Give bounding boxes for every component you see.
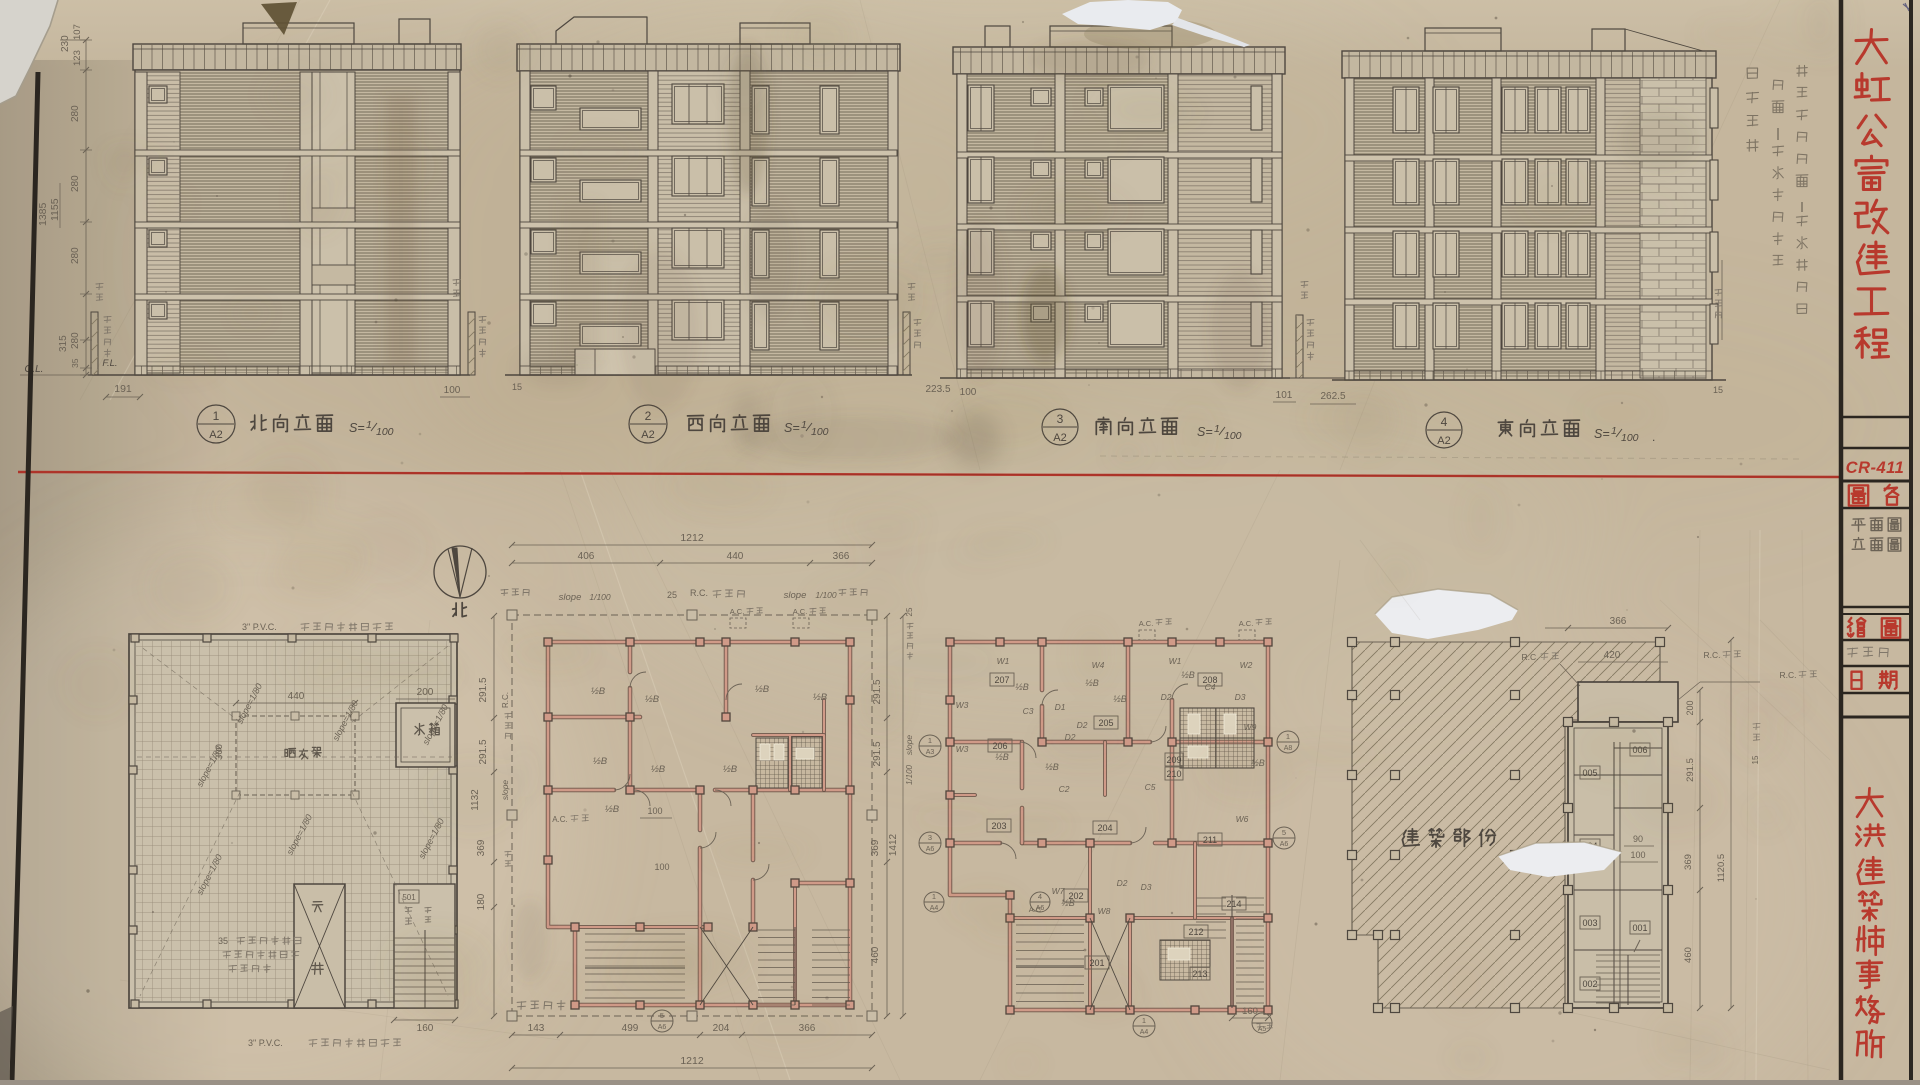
svg-text:R.C.: R.C. xyxy=(1780,670,1797,680)
svg-text:½B: ½B xyxy=(755,684,770,695)
svg-text:A6: A6 xyxy=(1036,905,1045,912)
svg-text:200: 200 xyxy=(417,687,434,698)
svg-text:3" P.V.C.: 3" P.V.C. xyxy=(248,1038,283,1048)
svg-text:280: 280 xyxy=(70,105,81,122)
svg-text:369: 369 xyxy=(1683,854,1694,870)
svg-text:206: 206 xyxy=(992,741,1007,751)
svg-text:100: 100 xyxy=(444,385,461,396)
svg-text:A6: A6 xyxy=(1280,841,1289,848)
svg-text:G.L.: G.L. xyxy=(25,364,44,375)
svg-text:143: 143 xyxy=(528,1023,545,1034)
svg-text:½B: ½B xyxy=(591,686,606,697)
svg-text:280: 280 xyxy=(70,175,81,192)
svg-text:1412: 1412 xyxy=(888,833,899,856)
svg-text:W6: W6 xyxy=(1236,814,1249,824)
svg-text:35: 35 xyxy=(70,358,80,368)
svg-text:W1: W1 xyxy=(1169,656,1182,666)
svg-text:A.C.: A.C. xyxy=(1239,619,1254,628)
svg-text:4: 4 xyxy=(1441,415,1448,429)
svg-text:209: 209 xyxy=(1166,755,1181,765)
svg-text:½B: ½B xyxy=(645,694,660,705)
svg-text:CR-411: CR-411 xyxy=(1846,459,1905,477)
svg-text:366: 366 xyxy=(833,551,850,562)
svg-text:A6: A6 xyxy=(926,846,935,853)
svg-text:1: 1 xyxy=(928,736,932,745)
svg-text:slope: slope xyxy=(904,735,914,756)
svg-text:D1: D1 xyxy=(1055,702,1066,712)
svg-text:315: 315 xyxy=(58,335,69,352)
svg-text:½B: ½B xyxy=(1015,682,1029,692)
svg-text:501: 501 xyxy=(402,893,416,902)
svg-text:1/100: 1/100 xyxy=(589,592,611,602)
svg-text:W1: W1 xyxy=(997,656,1010,666)
svg-text:W8: W8 xyxy=(1098,906,1111,916)
svg-text:180: 180 xyxy=(476,893,487,910)
svg-text:369: 369 xyxy=(476,839,487,856)
svg-text:1: 1 xyxy=(932,892,936,901)
svg-text:291.5: 291.5 xyxy=(872,741,883,766)
svg-text:W9: W9 xyxy=(1244,722,1257,732)
svg-text:100: 100 xyxy=(1630,850,1645,860)
svg-text:W7: W7 xyxy=(1052,886,1065,896)
svg-text:R.C.: R.C. xyxy=(1704,650,1721,660)
svg-text:1212: 1212 xyxy=(680,1055,704,1067)
svg-text:R.C.: R.C. xyxy=(501,692,510,708)
svg-text:230: 230 xyxy=(60,35,71,52)
svg-text:½B: ½B xyxy=(593,756,608,767)
svg-text:R.C.: R.C. xyxy=(690,588,708,598)
svg-text:3: 3 xyxy=(928,833,932,842)
svg-text:C5: C5 xyxy=(1145,782,1156,792)
svg-text:A.C.: A.C. xyxy=(1139,619,1154,628)
svg-text:A4: A4 xyxy=(1140,1029,1149,1036)
svg-text:½B: ½B xyxy=(605,804,620,815)
svg-text:1120.5: 1120.5 xyxy=(1716,854,1727,882)
svg-text:2: 2 xyxy=(645,409,652,423)
svg-text:280: 280 xyxy=(70,247,81,264)
svg-text:1385: 1385 xyxy=(37,202,49,226)
svg-text:A.C.: A.C. xyxy=(793,607,808,616)
svg-text:R.C.: R.C. xyxy=(1522,652,1539,662)
svg-text:440: 440 xyxy=(288,691,305,702)
svg-text:D2: D2 xyxy=(1161,692,1172,702)
svg-text:A3: A3 xyxy=(926,749,935,756)
svg-text:369: 369 xyxy=(870,839,881,856)
svg-text:204: 204 xyxy=(713,1023,730,1034)
svg-text:A4: A4 xyxy=(930,905,939,912)
svg-text:107: 107 xyxy=(72,24,83,40)
svg-text:460: 460 xyxy=(870,946,881,963)
svg-text:211: 211 xyxy=(1203,835,1217,845)
svg-text:499: 499 xyxy=(622,1023,639,1034)
svg-text:A2: A2 xyxy=(1053,432,1066,444)
svg-text:200: 200 xyxy=(1685,700,1695,715)
svg-text:214: 214 xyxy=(1226,899,1241,909)
svg-text:A2: A2 xyxy=(641,429,654,441)
svg-text:F.L.: F.L. xyxy=(102,358,117,369)
svg-text:002: 002 xyxy=(1582,979,1597,989)
svg-text:35: 35 xyxy=(218,936,228,946)
svg-text:1155: 1155 xyxy=(49,198,61,221)
svg-text:slope: slope xyxy=(559,592,582,603)
svg-text:160: 160 xyxy=(417,1023,434,1034)
svg-text:½B: ½B xyxy=(651,764,666,775)
svg-text:15: 15 xyxy=(1713,385,1723,395)
svg-text:½B: ½B xyxy=(813,692,828,703)
svg-text:A2: A2 xyxy=(209,429,222,441)
svg-text:191: 191 xyxy=(114,383,132,395)
svg-text:C4: C4 xyxy=(1205,682,1216,692)
svg-text:.: . xyxy=(1652,430,1655,444)
svg-text:½B: ½B xyxy=(1113,694,1127,704)
svg-text:1/100: 1/100 xyxy=(905,764,914,785)
svg-text:210: 210 xyxy=(1166,769,1181,779)
svg-text:A2: A2 xyxy=(1437,435,1450,447)
svg-text:212: 212 xyxy=(1188,927,1203,937)
svg-text:slope: slope xyxy=(784,590,807,601)
svg-text:213: 213 xyxy=(1192,969,1207,979)
svg-text:100: 100 xyxy=(654,862,669,872)
svg-text:4: 4 xyxy=(1038,892,1042,901)
svg-text:W3: W3 xyxy=(956,700,969,710)
svg-text:101: 101 xyxy=(1276,390,1293,401)
svg-text:003: 003 xyxy=(1582,918,1597,928)
svg-text:½B: ½B xyxy=(1181,670,1195,680)
svg-text:100: 100 xyxy=(647,806,662,816)
svg-text:204: 204 xyxy=(1097,823,1112,833)
svg-text:½B: ½B xyxy=(1045,762,1059,772)
svg-text:291.5: 291.5 xyxy=(478,677,489,702)
svg-text:25: 25 xyxy=(667,590,677,600)
svg-text:440: 440 xyxy=(727,551,744,562)
svg-text:W3: W3 xyxy=(956,744,969,754)
svg-text:100: 100 xyxy=(1224,430,1242,442)
svg-text:W2: W2 xyxy=(1240,660,1253,670)
svg-text:½B: ½B xyxy=(1061,898,1075,908)
svg-text:5: 5 xyxy=(1282,828,1286,837)
svg-text:160: 160 xyxy=(1242,1006,1258,1017)
svg-text:3" P.V.C.: 3" P.V.C. xyxy=(242,622,277,632)
svg-text:C2: C2 xyxy=(1059,784,1070,794)
svg-text:15: 15 xyxy=(512,382,522,392)
svg-text:D2: D2 xyxy=(1117,878,1128,888)
svg-text:420: 420 xyxy=(1604,650,1621,661)
svg-text:½B: ½B xyxy=(995,752,1009,762)
svg-text:1: 1 xyxy=(213,409,220,423)
svg-text:A.C.: A.C. xyxy=(730,607,745,616)
svg-text:280: 280 xyxy=(70,332,81,349)
svg-text:1: 1 xyxy=(1142,1016,1146,1025)
svg-text:S=: S= xyxy=(349,421,365,435)
svg-text:1: 1 xyxy=(1286,732,1290,741)
svg-text:201: 201 xyxy=(1089,958,1104,968)
svg-text:001: 001 xyxy=(1632,923,1647,933)
svg-text:½B: ½B xyxy=(723,764,738,775)
svg-text:5: 5 xyxy=(660,1011,664,1020)
svg-text:207: 207 xyxy=(994,675,1009,685)
svg-text:A.C.: A.C. xyxy=(552,815,568,824)
svg-text:100: 100 xyxy=(1621,432,1639,444)
svg-text:C3: C3 xyxy=(1023,706,1034,716)
svg-text:1212: 1212 xyxy=(680,532,704,544)
svg-text:100: 100 xyxy=(376,426,394,438)
svg-text:D3: D3 xyxy=(1141,882,1152,892)
svg-text:1: 1 xyxy=(366,419,372,431)
svg-text:406: 406 xyxy=(578,551,595,562)
svg-text:D3: D3 xyxy=(1235,692,1246,702)
svg-text:90: 90 xyxy=(1633,834,1643,844)
svg-text:A6: A6 xyxy=(658,1024,667,1031)
svg-text:123: 123 xyxy=(72,50,83,66)
svg-text:366: 366 xyxy=(1610,616,1627,627)
svg-text:223.5: 223.5 xyxy=(925,384,950,395)
